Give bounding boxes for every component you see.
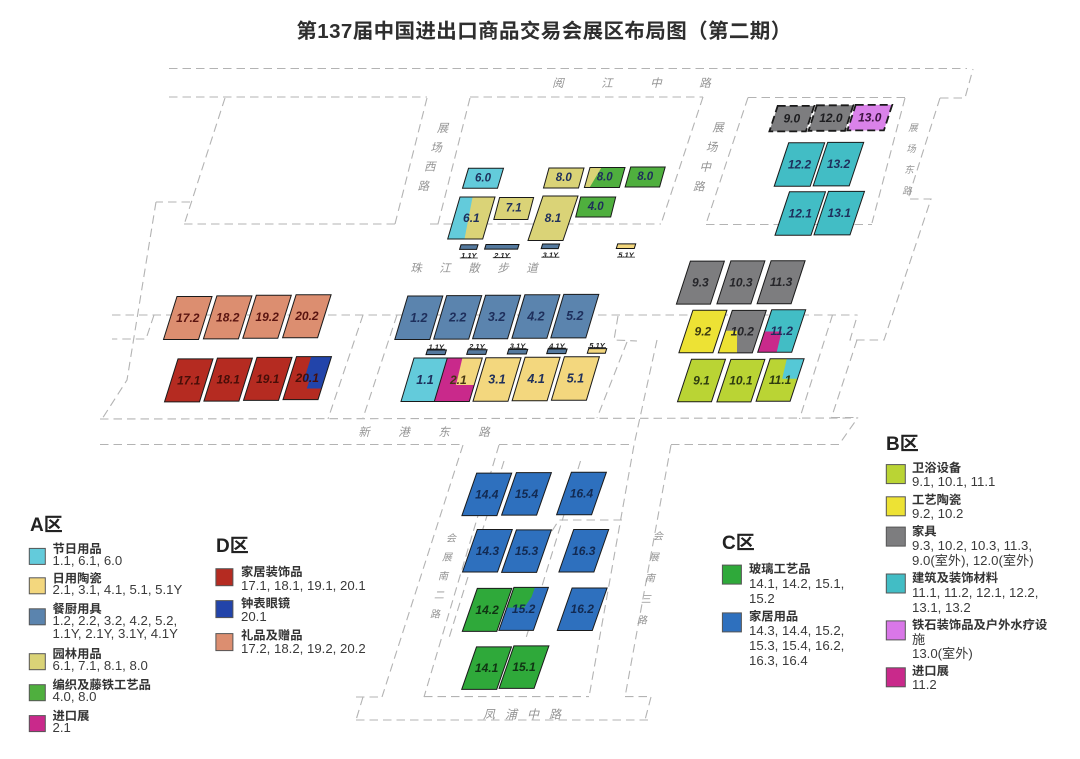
svg-text:17.1, 18.1, 19.1, 20.1: 17.1, 18.1, 19.1, 20.1: [241, 578, 366, 593]
svg-text:路: 路: [549, 706, 562, 723]
svg-text:展: 展: [908, 120, 919, 134]
svg-text:11.3: 11.3: [770, 275, 793, 289]
svg-text:9.1: 9.1: [693, 373, 710, 387]
svg-text:2.1Y: 2.1Y: [493, 251, 510, 260]
svg-text:展: 展: [712, 120, 725, 136]
svg-text:11.2: 11.2: [770, 324, 793, 338]
svg-text:阅: 阅: [552, 75, 565, 91]
svg-text:8.0: 8.0: [637, 171, 654, 183]
svg-text:散: 散: [468, 260, 481, 276]
svg-text:10.3: 10.3: [729, 275, 753, 289]
svg-text:14.4: 14.4: [475, 487, 499, 501]
svg-text:13.0(室外): 13.0(室外): [912, 646, 973, 661]
svg-text:浦: 浦: [505, 706, 519, 723]
svg-text:3.1Y: 3.1Y: [543, 250, 559, 259]
svg-text:3.1: 3.1: [488, 373, 505, 387]
svg-text:展: 展: [437, 120, 450, 136]
svg-text:11.2: 11.2: [912, 677, 937, 692]
svg-text:11.1, 11.2, 12.1, 12.2,: 11.1, 11.2, 12.1, 12.2,: [912, 585, 1038, 600]
svg-text:3.2: 3.2: [488, 310, 505, 324]
svg-text:铁石装饰品及户外水疗设: 铁石装饰品及户外水疗设: [912, 615, 1047, 633]
svg-text:13.1: 13.1: [828, 206, 852, 220]
svg-text:家居用品: 家居用品: [749, 606, 798, 624]
svg-text:10.2: 10.2: [731, 325, 755, 339]
svg-text:5.2: 5.2: [566, 309, 583, 323]
svg-text:9.3: 9.3: [692, 276, 709, 290]
svg-text:路: 路: [699, 75, 712, 91]
svg-text:江: 江: [439, 260, 452, 276]
svg-text:第137届中国进出口商品交易会展区布局图（第二期）: 第137届中国进出口商品交易会展区布局图（第二期）: [296, 20, 791, 43]
svg-text:12.0: 12.0: [819, 111, 843, 125]
svg-text:展: 展: [442, 549, 453, 564]
svg-text:9.2, 10.2: 9.2, 10.2: [912, 506, 963, 521]
svg-text:路: 路: [693, 179, 706, 195]
svg-text:17.2, 18.2, 19.2, 20.2: 17.2, 18.2, 19.2, 20.2: [241, 641, 366, 656]
svg-text:11.1: 11.1: [769, 373, 792, 387]
svg-text:2.2: 2.2: [448, 310, 466, 324]
svg-text:路: 路: [418, 178, 431, 194]
svg-text:中: 中: [650, 75, 663, 91]
svg-text:16.2: 16.2: [571, 602, 595, 616]
svg-text:展: 展: [649, 549, 660, 564]
svg-text:4.2: 4.2: [526, 310, 544, 324]
svg-text:15.2: 15.2: [749, 591, 775, 606]
svg-text:13.1, 13.2: 13.1, 13.2: [912, 600, 971, 615]
svg-text:D区: D区: [216, 536, 249, 557]
svg-text:18.1: 18.1: [217, 373, 241, 387]
svg-text:A区: A区: [30, 515, 63, 536]
svg-text:5.1Y: 5.1Y: [618, 250, 634, 259]
svg-text:14.2: 14.2: [475, 603, 499, 617]
svg-text:12.1: 12.1: [789, 207, 813, 221]
svg-text:珠: 珠: [410, 260, 423, 276]
svg-text:16.4: 16.4: [570, 486, 594, 500]
svg-text:C区: C区: [722, 533, 755, 554]
svg-text:14.1, 14.2, 15.1,: 14.1, 14.2, 15.1,: [749, 576, 844, 591]
svg-text:20.1: 20.1: [241, 609, 267, 624]
svg-text:道: 道: [526, 260, 539, 276]
svg-text:凤: 凤: [483, 706, 496, 723]
svg-text:新: 新: [358, 424, 371, 440]
svg-text:19.1: 19.1: [256, 372, 280, 386]
svg-text:4.0, 8.0: 4.0, 8.0: [53, 689, 97, 704]
svg-text:8.0: 8.0: [597, 172, 614, 184]
svg-text:18.2: 18.2: [216, 310, 240, 324]
svg-text:3.1Y: 3.1Y: [510, 342, 526, 351]
svg-text:9.0(室外), 12.0(室外): 9.0(室外), 12.0(室外): [912, 553, 1034, 568]
svg-text:4.1Y: 4.1Y: [548, 341, 565, 350]
svg-text:场: 场: [430, 139, 443, 155]
svg-text:4.0: 4.0: [587, 201, 605, 213]
svg-text:路: 路: [430, 606, 441, 621]
svg-text:5.1: 5.1: [567, 371, 584, 385]
svg-text:1.1Y: 1.1Y: [461, 251, 477, 260]
svg-text:13.2: 13.2: [827, 157, 851, 171]
svg-text:8.0: 8.0: [556, 172, 573, 184]
svg-text:9.1, 10.1, 11.1: 9.1, 10.1, 11.1: [912, 474, 995, 489]
svg-text:中: 中: [527, 706, 540, 723]
svg-text:10.1: 10.1: [729, 374, 753, 388]
svg-text:2.1: 2.1: [53, 720, 71, 735]
svg-text:家具: 家具: [912, 521, 937, 539]
svg-text:17.2: 17.2: [176, 311, 200, 325]
svg-text:1.2: 1.2: [410, 311, 427, 325]
svg-text:1.1Y: 1.1Y: [428, 342, 444, 351]
svg-text:19.2: 19.2: [255, 310, 279, 324]
svg-text:7.1: 7.1: [506, 203, 522, 215]
svg-text:1.1Y, 2.1Y, 3.1Y, 4.1Y: 1.1Y, 2.1Y, 3.1Y, 4.1Y: [53, 626, 179, 641]
svg-text:9.0: 9.0: [783, 112, 800, 126]
svg-text:14.3: 14.3: [476, 544, 500, 558]
svg-text:场: 场: [706, 139, 719, 155]
svg-text:16.3: 16.3: [572, 544, 596, 558]
svg-text:2.1: 2.1: [449, 373, 467, 387]
svg-text:15.3: 15.3: [515, 544, 539, 558]
svg-text:三: 三: [641, 591, 652, 606]
svg-text:1.1, 6.1, 6.0: 1.1, 6.1, 6.0: [53, 553, 123, 568]
svg-text:建筑及装饰材料: 建筑及装饰材料: [912, 568, 999, 586]
svg-text:5.1Y: 5.1Y: [589, 341, 605, 350]
svg-text:2.1Y: 2.1Y: [468, 342, 485, 351]
svg-text:17.1: 17.1: [177, 373, 201, 387]
svg-text:港: 港: [398, 424, 411, 440]
svg-text:15.3, 15.4, 16.2,: 15.3, 15.4, 16.2,: [749, 638, 844, 653]
svg-text:B区: B区: [886, 434, 919, 455]
svg-text:9.2: 9.2: [695, 324, 712, 338]
svg-text:14.1: 14.1: [475, 661, 499, 675]
svg-text:14.3, 14.4, 15.2,: 14.3, 14.4, 15.2,: [749, 623, 844, 638]
svg-text:会: 会: [446, 530, 457, 545]
svg-text:6.1: 6.1: [463, 211, 480, 225]
svg-text:东: 东: [904, 162, 915, 176]
svg-text:东: 东: [438, 424, 451, 440]
svg-text:路: 路: [478, 424, 491, 440]
svg-text:施: 施: [912, 632, 925, 647]
svg-text:玻璃工艺品: 玻璃工艺品: [749, 559, 811, 577]
svg-text:6.0: 6.0: [475, 172, 492, 184]
svg-text:路: 路: [902, 183, 913, 197]
svg-text:2.1, 3.1, 4.1, 5.1, 5.1Y: 2.1, 3.1, 4.1, 5.1, 5.1Y: [53, 582, 183, 597]
svg-text:13.0: 13.0: [858, 111, 882, 125]
svg-text:江: 江: [601, 75, 614, 91]
svg-text:12.2: 12.2: [788, 158, 812, 172]
svg-text:会: 会: [653, 528, 664, 543]
svg-text:8.1: 8.1: [545, 211, 562, 225]
svg-text:路: 路: [637, 612, 648, 627]
svg-text:15.1: 15.1: [512, 660, 536, 674]
svg-text:1.1: 1.1: [416, 373, 433, 387]
svg-text:9.3, 10.2, 10.3, 11.3,: 9.3, 10.2, 10.3, 11.3,: [912, 538, 1032, 553]
svg-text:4.1: 4.1: [526, 372, 544, 386]
svg-text:中: 中: [699, 159, 712, 175]
svg-text:二: 二: [434, 587, 445, 602]
svg-text:16.3, 16.4: 16.3, 16.4: [749, 653, 808, 668]
svg-text:15.2: 15.2: [512, 602, 536, 616]
svg-text:步: 步: [497, 260, 510, 276]
svg-text:15.4: 15.4: [515, 487, 539, 501]
svg-text:进口展: 进口展: [912, 661, 949, 679]
svg-text:20.1: 20.1: [295, 371, 320, 385]
svg-text:6.1, 7.1, 8.1, 8.0: 6.1, 7.1, 8.1, 8.0: [53, 658, 148, 673]
svg-text:场: 场: [906, 141, 917, 155]
svg-text:20.2: 20.2: [294, 309, 319, 323]
